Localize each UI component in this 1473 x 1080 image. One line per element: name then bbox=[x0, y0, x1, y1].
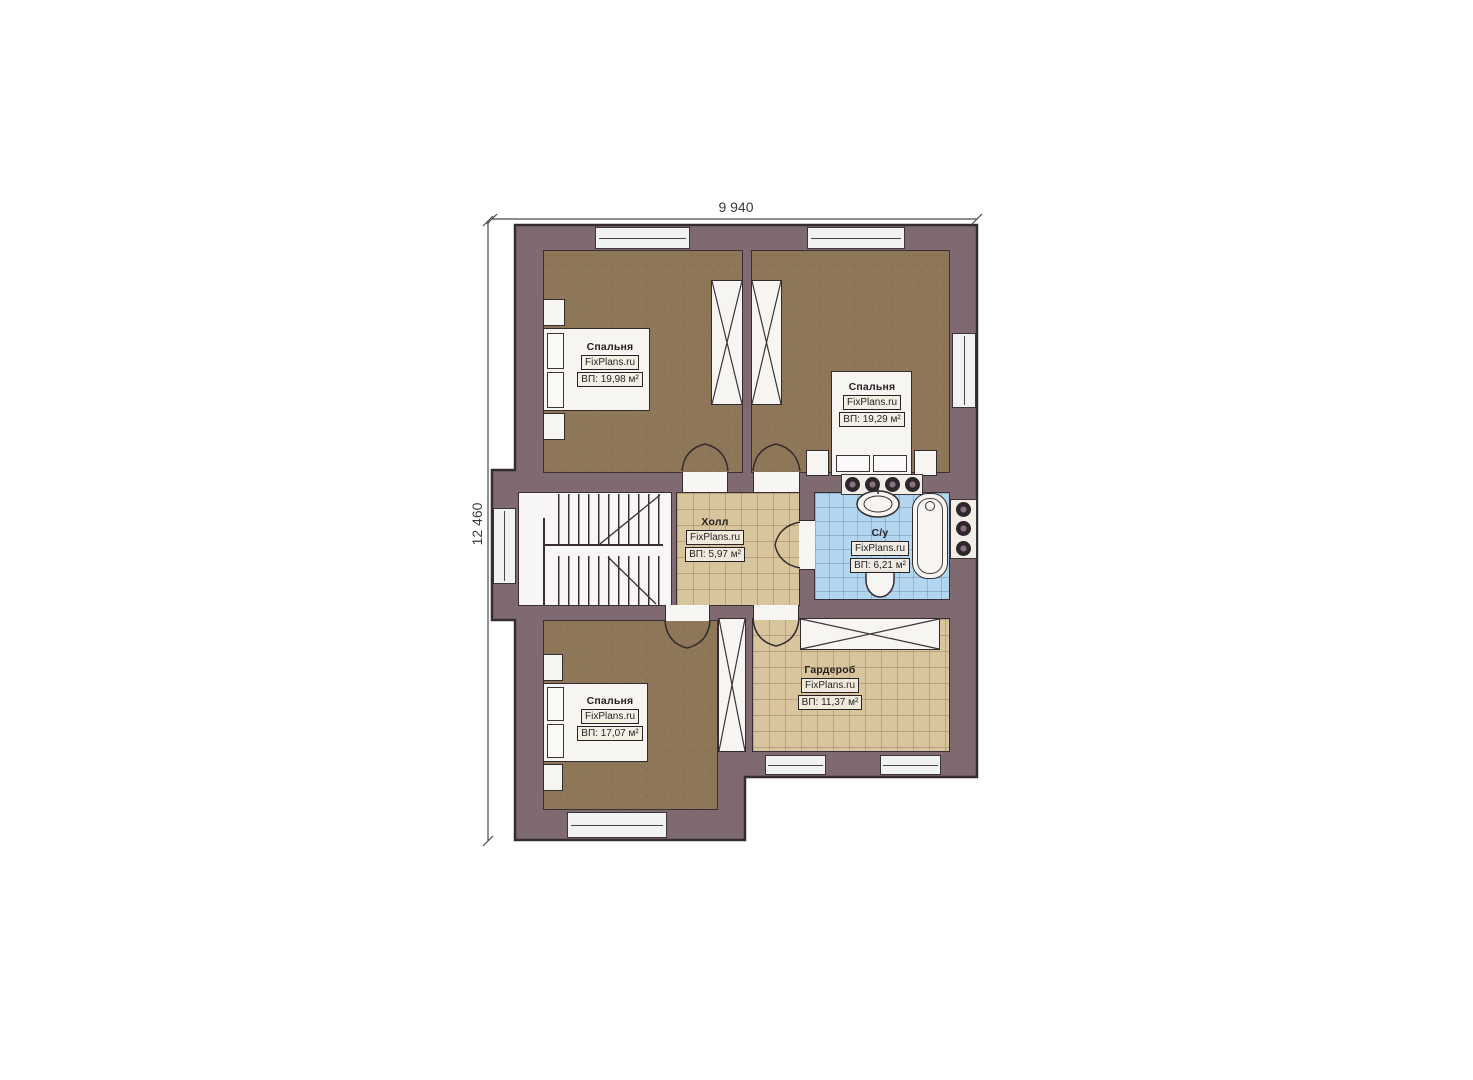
pillow bbox=[836, 455, 870, 472]
vent-duct-icon bbox=[956, 502, 971, 517]
bathtub-icon bbox=[912, 493, 948, 579]
room-name: Спальня bbox=[570, 695, 650, 707]
room-label-bathroom: С/у FixPlans.ru ВП: 6,21 м² bbox=[846, 527, 914, 573]
pillow bbox=[547, 333, 564, 369]
room-label-bedroom-top-left: Спальня FixPlans.ru ВП: 19,98 м² bbox=[568, 341, 652, 387]
pillow bbox=[547, 687, 564, 721]
stair-treads-upper bbox=[558, 494, 662, 544]
room-name: Гардероб bbox=[796, 664, 864, 676]
window-bottom-bedroom bbox=[567, 812, 667, 838]
door-opening-wardrobe-room bbox=[753, 605, 799, 620]
wardrobe-cabinet-4 bbox=[800, 618, 940, 650]
nightstand bbox=[914, 450, 937, 476]
watermark: FixPlans.ru bbox=[843, 395, 901, 410]
window-glazing bbox=[768, 765, 823, 766]
window-glazing bbox=[883, 765, 938, 766]
window-bottom-wardrobe-2 bbox=[880, 755, 941, 775]
watermark: FixPlans.ru bbox=[851, 541, 909, 556]
watermark: FixPlans.ru bbox=[801, 678, 859, 693]
dimension-height-label: 12 460 bbox=[469, 488, 485, 560]
room-area: ВП: 17,07 м² bbox=[577, 726, 642, 741]
pillow bbox=[547, 724, 564, 758]
door-opening-bedroom-bottom bbox=[665, 605, 710, 621]
room-name: Спальня bbox=[568, 341, 652, 353]
vent-block-horizontal bbox=[841, 474, 923, 495]
window-glazing bbox=[599, 238, 686, 239]
room-area: ВП: 5,97 м² bbox=[685, 547, 745, 562]
stair-landing-line bbox=[543, 544, 663, 546]
vent-duct-icon bbox=[865, 477, 880, 492]
window-top-1 bbox=[595, 227, 690, 249]
room-label-hall: Холл FixPlans.ru ВП: 5,97 м² bbox=[683, 516, 747, 562]
pillow bbox=[547, 372, 564, 408]
window-glazing bbox=[811, 238, 901, 239]
room-name: Холл bbox=[683, 516, 747, 528]
bathtub-drain bbox=[925, 501, 935, 511]
room-name: С/у bbox=[846, 527, 914, 539]
nightstand bbox=[543, 413, 565, 440]
window-stair-left bbox=[493, 508, 516, 584]
vent-duct-icon bbox=[845, 477, 860, 492]
stair-treads-lower bbox=[558, 556, 662, 606]
pillow bbox=[873, 455, 907, 472]
watermark: FixPlans.ru bbox=[581, 709, 639, 724]
door-opening-bedroom-top-left bbox=[682, 472, 728, 492]
window-top-2 bbox=[807, 227, 905, 249]
room-area: ВП: 19,98 м² bbox=[577, 372, 642, 387]
room-label-bedroom-top-right: Спальня FixPlans.ru ВП: 19,29 м² bbox=[833, 381, 911, 427]
wardrobe-cabinet-2 bbox=[751, 280, 782, 405]
window-bottom-wardrobe-1 bbox=[765, 755, 826, 775]
window-glazing bbox=[504, 511, 505, 581]
vent-duct-icon bbox=[905, 477, 920, 492]
door-opening-bathroom bbox=[799, 520, 815, 570]
stair-landing-edge bbox=[543, 518, 545, 606]
door-opening-bedroom-top-right bbox=[753, 472, 800, 492]
window-glazing bbox=[571, 825, 663, 826]
room-area: ВП: 6,21 м² bbox=[850, 558, 910, 573]
floor-plan-page: 9 940 12 460 Спальня FixPlans.ru ВП: 19,… bbox=[0, 0, 1473, 1080]
room-label-wardrobe-room: Гардероб FixPlans.ru ВП: 11,37 м² bbox=[796, 664, 864, 710]
wardrobe-cabinet-1 bbox=[711, 280, 743, 405]
room-area: ВП: 11,37 м² bbox=[798, 695, 863, 710]
nightstand bbox=[543, 299, 565, 326]
dimension-width-label: 9 940 bbox=[700, 199, 772, 215]
wardrobe-cabinet-3 bbox=[718, 618, 746, 752]
nightstand bbox=[543, 654, 563, 681]
watermark: FixPlans.ru bbox=[686, 530, 744, 545]
room-area: ВП: 19,29 м² bbox=[839, 412, 904, 427]
vent-duct-icon bbox=[956, 521, 971, 536]
window-right-bedroom bbox=[952, 333, 976, 408]
vent-duct-icon bbox=[885, 477, 900, 492]
vent-duct-icon bbox=[956, 541, 971, 556]
nightstand bbox=[543, 764, 563, 791]
nightstand bbox=[806, 450, 829, 476]
watermark: FixPlans.ru bbox=[581, 355, 639, 370]
window-glazing bbox=[964, 336, 965, 405]
room-name: Спальня bbox=[833, 381, 911, 393]
vent-block-vertical bbox=[950, 499, 977, 559]
room-label-bedroom-bottom: Спальня FixPlans.ru ВП: 17,07 м² bbox=[570, 695, 650, 741]
